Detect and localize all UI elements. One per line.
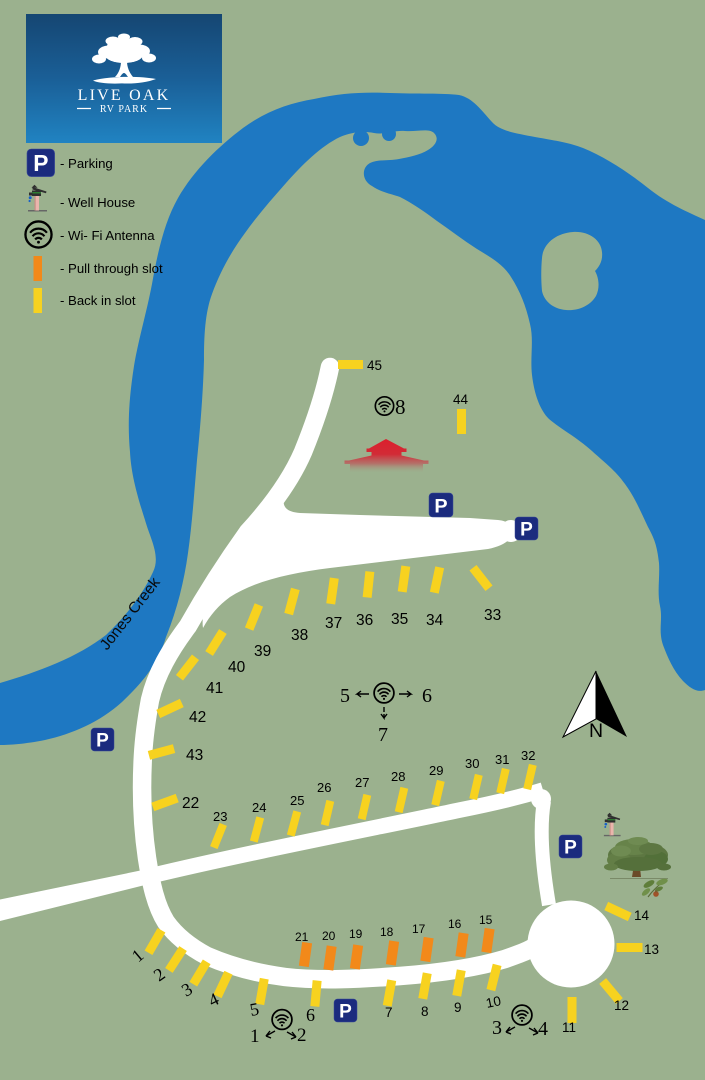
svg-text:39: 39 bbox=[254, 643, 271, 660]
svg-text:7: 7 bbox=[385, 1005, 393, 1020]
svg-text:- Pull through slot: - Pull through slot bbox=[60, 261, 163, 276]
svg-text:10: 10 bbox=[485, 993, 503, 1011]
svg-text:2: 2 bbox=[297, 1025, 307, 1046]
svg-text:35: 35 bbox=[391, 611, 408, 628]
svg-text:14: 14 bbox=[634, 908, 650, 923]
svg-text:15: 15 bbox=[479, 913, 493, 927]
svg-text:16: 16 bbox=[448, 917, 462, 931]
svg-text:- Parking: - Parking bbox=[60, 156, 113, 171]
svg-text:31: 31 bbox=[495, 752, 509, 767]
svg-text:42: 42 bbox=[189, 709, 206, 726]
svg-text:21: 21 bbox=[295, 930, 309, 944]
svg-text:28: 28 bbox=[391, 769, 405, 784]
svg-text:19: 19 bbox=[349, 927, 363, 941]
svg-text:41: 41 bbox=[206, 680, 223, 697]
svg-text:24: 24 bbox=[252, 800, 266, 815]
svg-text:8: 8 bbox=[395, 395, 406, 419]
svg-text:- Back in slot: - Back in slot bbox=[60, 293, 136, 308]
svg-text:44: 44 bbox=[453, 392, 469, 407]
svg-text:18: 18 bbox=[380, 925, 394, 939]
svg-text:32: 32 bbox=[521, 748, 535, 763]
svg-text:45: 45 bbox=[367, 358, 382, 373]
svg-text:17: 17 bbox=[412, 922, 426, 936]
svg-text:- Wi- Fi Antenna: - Wi- Fi Antenna bbox=[60, 228, 155, 243]
svg-text:9: 9 bbox=[454, 1000, 462, 1015]
svg-text:7: 7 bbox=[378, 724, 388, 746]
svg-text:5: 5 bbox=[340, 685, 350, 707]
svg-text:25: 25 bbox=[290, 793, 304, 808]
svg-text:N: N bbox=[589, 720, 603, 742]
svg-text:22: 22 bbox=[182, 795, 199, 812]
svg-text:23: 23 bbox=[213, 809, 227, 824]
svg-text:RV PARK: RV PARK bbox=[100, 104, 148, 115]
svg-text:38: 38 bbox=[291, 627, 308, 644]
svg-text:33: 33 bbox=[484, 607, 501, 624]
svg-text:27: 27 bbox=[355, 775, 369, 790]
svg-text:36: 36 bbox=[356, 612, 373, 629]
svg-text:13: 13 bbox=[644, 942, 659, 957]
svg-text:26: 26 bbox=[317, 780, 331, 795]
svg-text:30: 30 bbox=[465, 756, 479, 771]
svg-text:11: 11 bbox=[562, 1020, 576, 1035]
svg-text:20: 20 bbox=[322, 929, 336, 943]
svg-text:3: 3 bbox=[492, 1017, 502, 1039]
svg-text:40: 40 bbox=[228, 659, 246, 676]
svg-text:6: 6 bbox=[306, 1005, 315, 1025]
svg-text:8: 8 bbox=[421, 1004, 429, 1019]
svg-text:LIVE OAK: LIVE OAK bbox=[78, 87, 171, 104]
svg-text:37: 37 bbox=[325, 615, 342, 632]
svg-text:1: 1 bbox=[250, 1026, 260, 1047]
svg-text:6: 6 bbox=[422, 685, 432, 707]
svg-text:34: 34 bbox=[426, 612, 444, 629]
svg-text:29: 29 bbox=[429, 763, 443, 778]
svg-text:- Well House: - Well House bbox=[60, 195, 135, 210]
svg-text:12: 12 bbox=[614, 998, 629, 1013]
svg-text:4: 4 bbox=[538, 1018, 548, 1040]
svg-text:43: 43 bbox=[186, 747, 203, 764]
